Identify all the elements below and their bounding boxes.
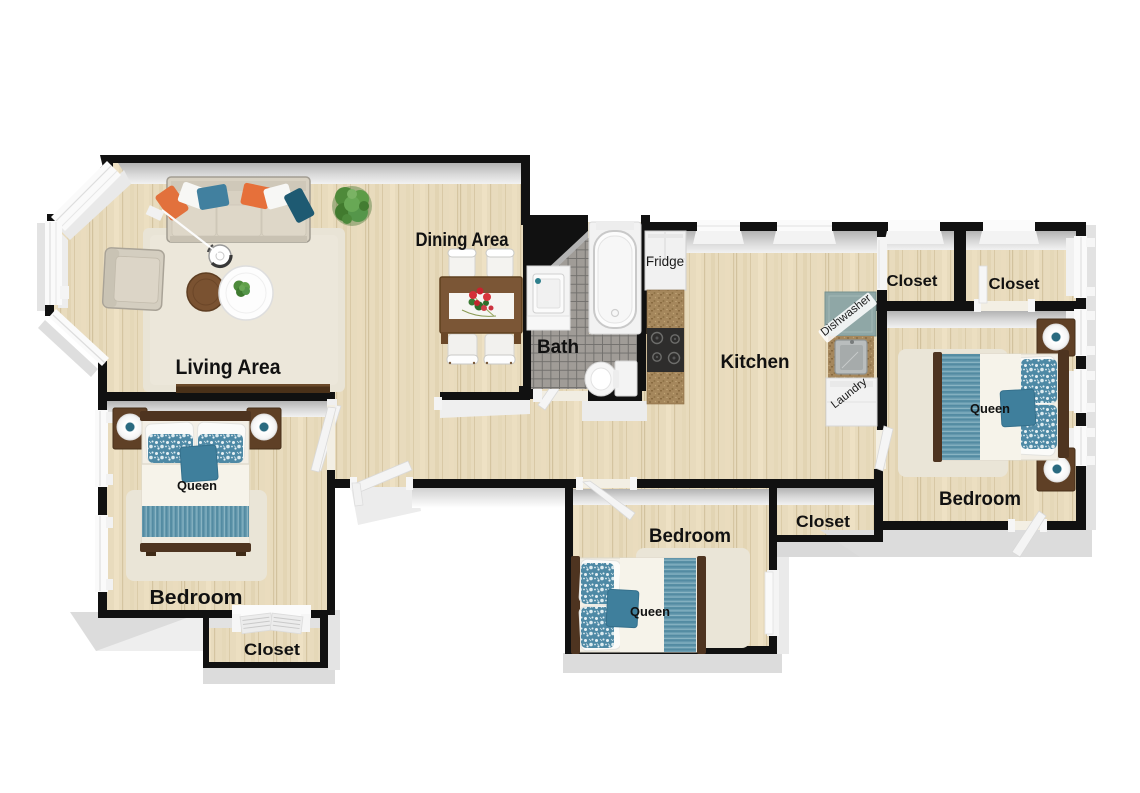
svg-text:Queen: Queen	[970, 402, 1010, 416]
svg-text:Kitchen: Kitchen	[721, 352, 790, 373]
svg-text:Closet: Closet	[796, 512, 850, 531]
svg-text:Closet: Closet	[244, 640, 300, 659]
svg-text:Queen: Queen	[177, 479, 217, 493]
svg-text:Bedroom: Bedroom	[150, 587, 243, 609]
svg-text:Living Area: Living Area	[176, 356, 281, 379]
svg-text:Dining Area: Dining Area	[416, 230, 509, 251]
svg-text:Bath: Bath	[537, 337, 579, 358]
svg-text:Closet: Closet	[887, 273, 939, 290]
svg-text:Queen: Queen	[630, 605, 670, 619]
svg-text:Bedroom: Bedroom	[939, 489, 1021, 510]
svg-text:Closet: Closet	[989, 276, 1041, 293]
svg-text:Fridge: Fridge	[646, 254, 684, 269]
svg-text:Bedroom: Bedroom	[649, 526, 731, 547]
